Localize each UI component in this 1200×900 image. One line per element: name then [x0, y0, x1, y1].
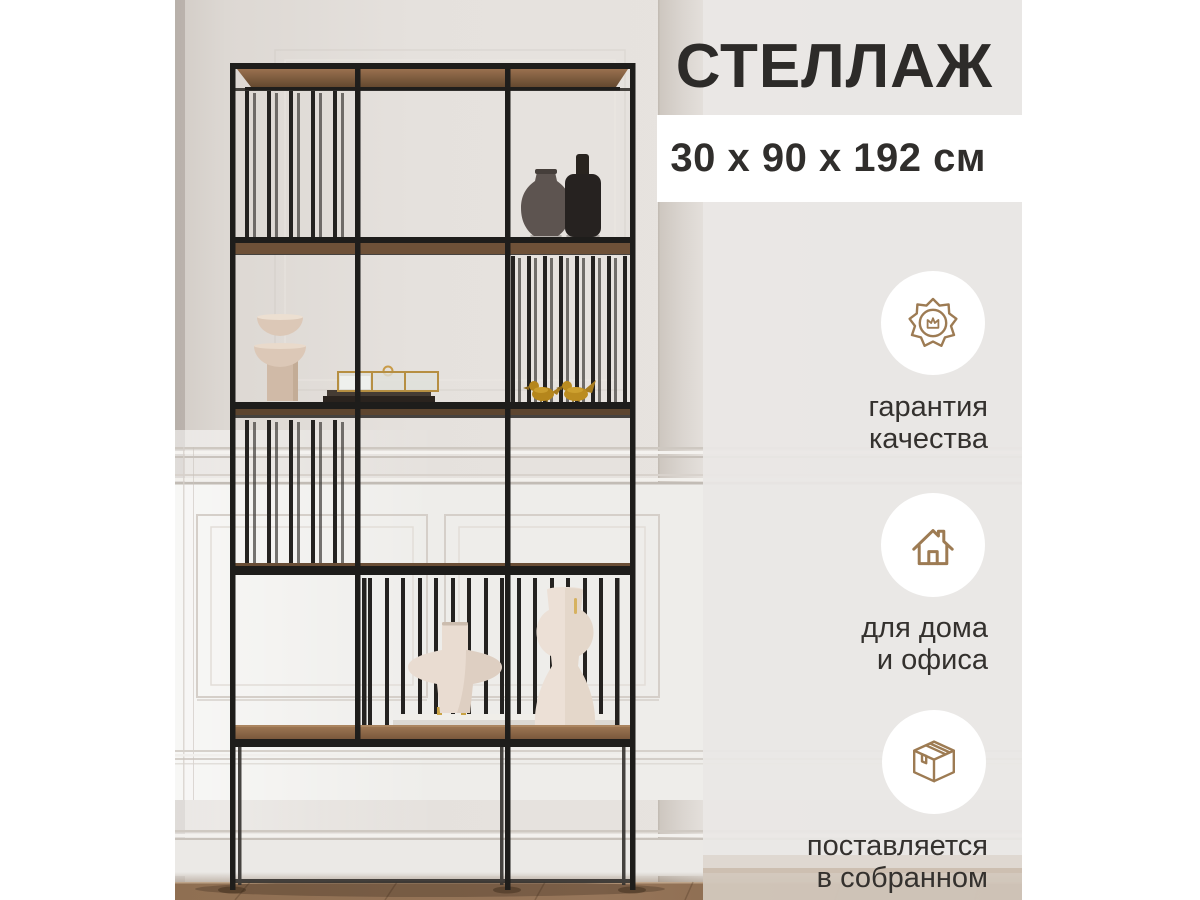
feature-label-home-office: для дома и офиса: [861, 612, 988, 676]
feature-label-line: в собранном: [807, 862, 988, 894]
feature-badge-assembled: [882, 710, 986, 814]
feature-badge-home-office: [881, 493, 985, 597]
feature-label-line: поставляется: [807, 830, 988, 862]
product-dimensions: 30 х 90 х 192 см: [670, 136, 986, 181]
feature-label-line: гарантия: [868, 391, 988, 423]
glass-gold-box: [323, 367, 438, 403]
quality-seal-icon: [903, 293, 963, 353]
feature-label-line: для дома: [861, 612, 988, 644]
feature-label-quality: гарантия качества: [868, 391, 988, 455]
feature-badge-quality: [881, 271, 985, 375]
product-card: СТЕЛЛАЖ 30 х 90 х 192 см гарантия качест…: [0, 0, 1200, 900]
package-box-icon: [904, 732, 964, 792]
unit-shadow: [195, 881, 665, 897]
feature-label-line: качества: [868, 423, 988, 455]
feature-label-line: и офиса: [861, 644, 988, 676]
dimensions-band: 30 х 90 х 192 см: [657, 115, 1022, 202]
feature-label-assembled: поставляется в собранном: [807, 830, 988, 894]
product-title: СТЕЛЛАЖ: [676, 34, 993, 100]
house-icon: [903, 515, 963, 575]
